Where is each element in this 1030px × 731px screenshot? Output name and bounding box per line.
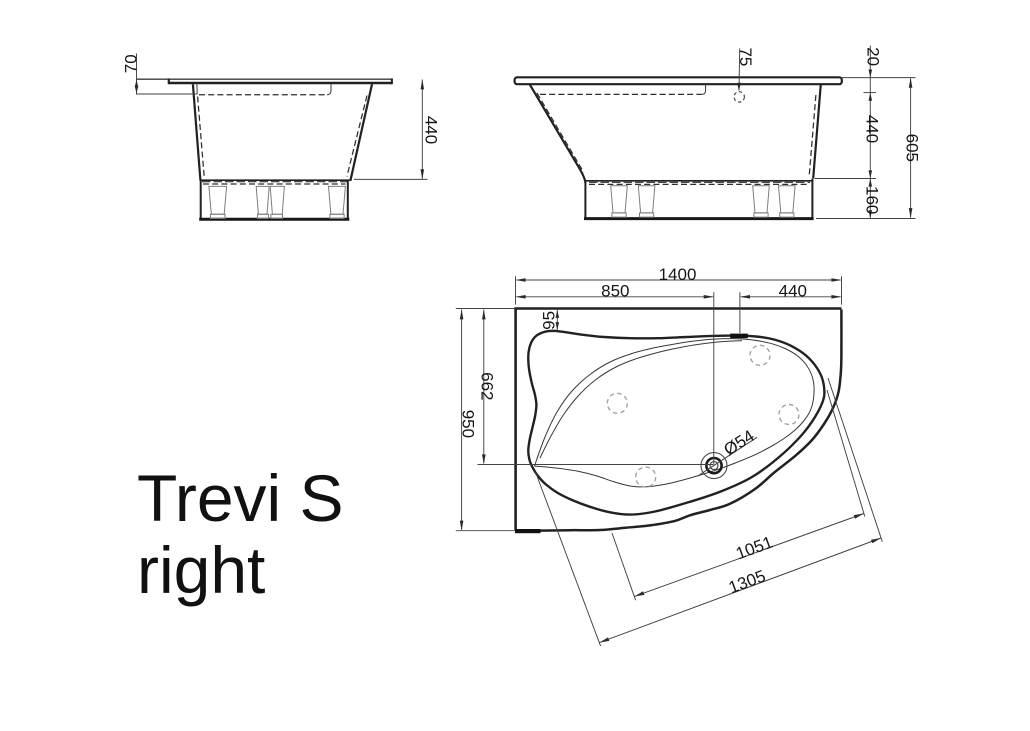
- svg-text:850: 850: [601, 281, 629, 300]
- svg-text:950: 950: [459, 410, 478, 438]
- svg-text:605: 605: [903, 134, 922, 162]
- svg-text:1051: 1051: [733, 533, 775, 564]
- svg-text:160: 160: [862, 186, 881, 214]
- svg-text:440: 440: [862, 115, 881, 143]
- svg-text:440: 440: [421, 116, 440, 144]
- svg-text:1400: 1400: [659, 265, 697, 284]
- svg-text:662: 662: [478, 372, 497, 400]
- svg-text:440: 440: [779, 281, 807, 300]
- svg-text:1305: 1305: [726, 566, 768, 597]
- svg-text:75: 75: [736, 47, 755, 66]
- svg-text:95: 95: [539, 311, 558, 330]
- svg-text:Ø54: Ø54: [720, 426, 757, 459]
- svg-text:70: 70: [121, 54, 140, 73]
- svg-text:20: 20: [863, 47, 882, 66]
